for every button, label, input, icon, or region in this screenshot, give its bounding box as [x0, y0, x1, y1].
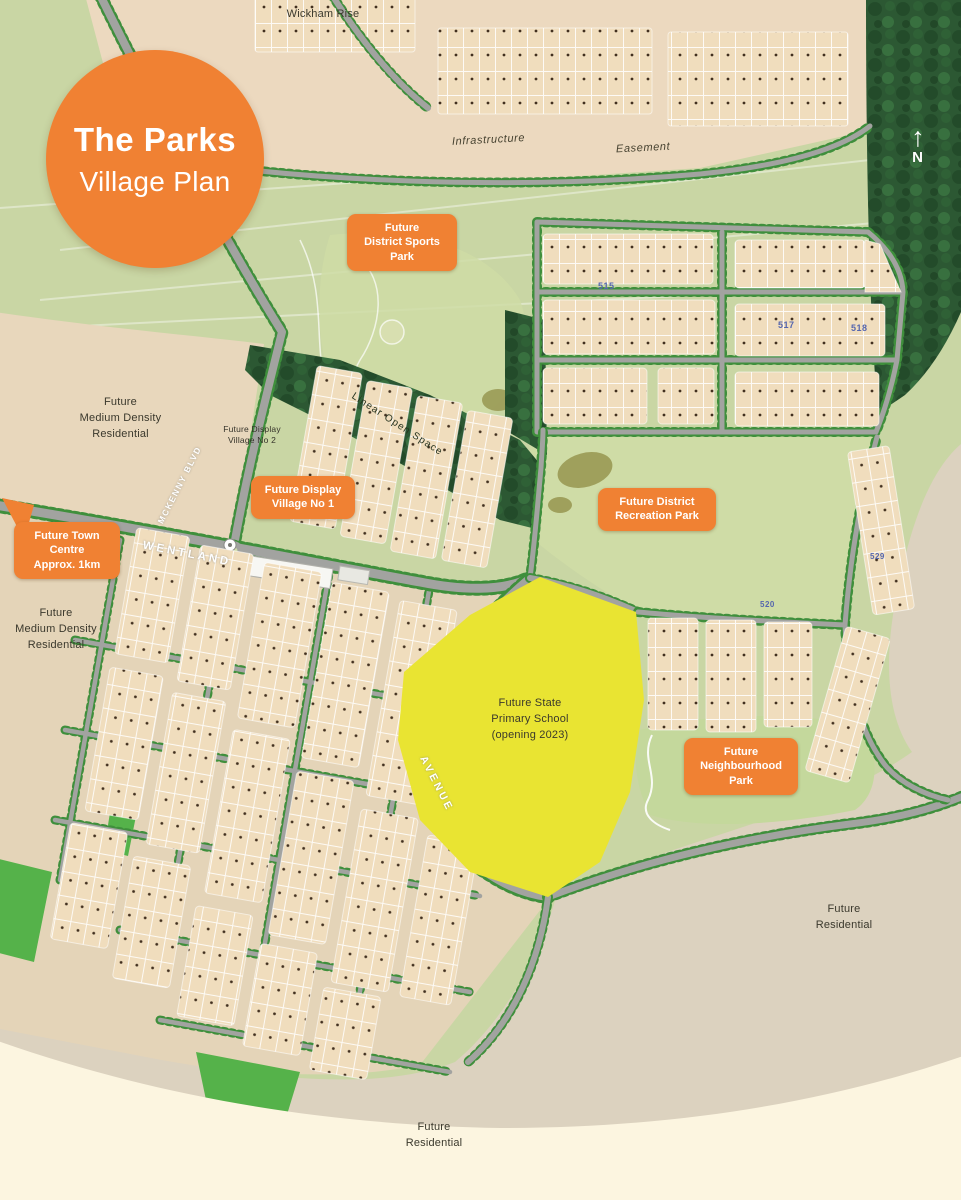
- school-label: Future State Primary School (opening 202…: [445, 696, 615, 744]
- town-centre-badge: Future Town Centre Approx. 1km: [14, 522, 120, 579]
- north-label: N: [896, 149, 940, 166]
- easement-label: Easement: [616, 140, 671, 159]
- stage-label-520: 520: [760, 600, 775, 609]
- recreation-park-badge: Future District Recreation Park: [598, 488, 716, 531]
- sports-park-badge: Future District Sports Park: [347, 214, 457, 271]
- display-village-2-label: Future Display Village No 2: [212, 424, 292, 447]
- stage-label-518: 518: [851, 323, 868, 333]
- north-compass: ↑ N: [896, 126, 940, 166]
- stage-label-515: 515: [598, 281, 615, 291]
- medium-density-2-label: Future Medium Density Residential: [0, 606, 112, 654]
- plan-title-circle: The Parks Village Plan: [46, 50, 264, 268]
- display-village-1-badge: Future Display Village No 1: [251, 476, 355, 519]
- north-arrow-icon: ↑: [896, 126, 940, 149]
- neighbourhood-park-badge: Future Neighbourhood Park: [684, 738, 798, 795]
- wickham-rise-label: Wickham Rise: [262, 7, 384, 23]
- lot-blocks-mid-east: [648, 618, 812, 732]
- residential-south-label: Future Residential: [370, 1120, 498, 1152]
- medium-density-1-label: Future Medium Density Residential: [38, 395, 203, 443]
- stage-label-529: 529: [870, 552, 885, 561]
- plan-title-line2: Village Plan: [80, 166, 231, 198]
- residential-east-label: Future Residential: [780, 902, 908, 934]
- plan-title-line1: The Parks: [74, 121, 236, 159]
- village-plan-map: The Parks Village Plan ↑ N Wickham Rise …: [0, 0, 961, 1200]
- stage-label-517: 517: [778, 320, 795, 330]
